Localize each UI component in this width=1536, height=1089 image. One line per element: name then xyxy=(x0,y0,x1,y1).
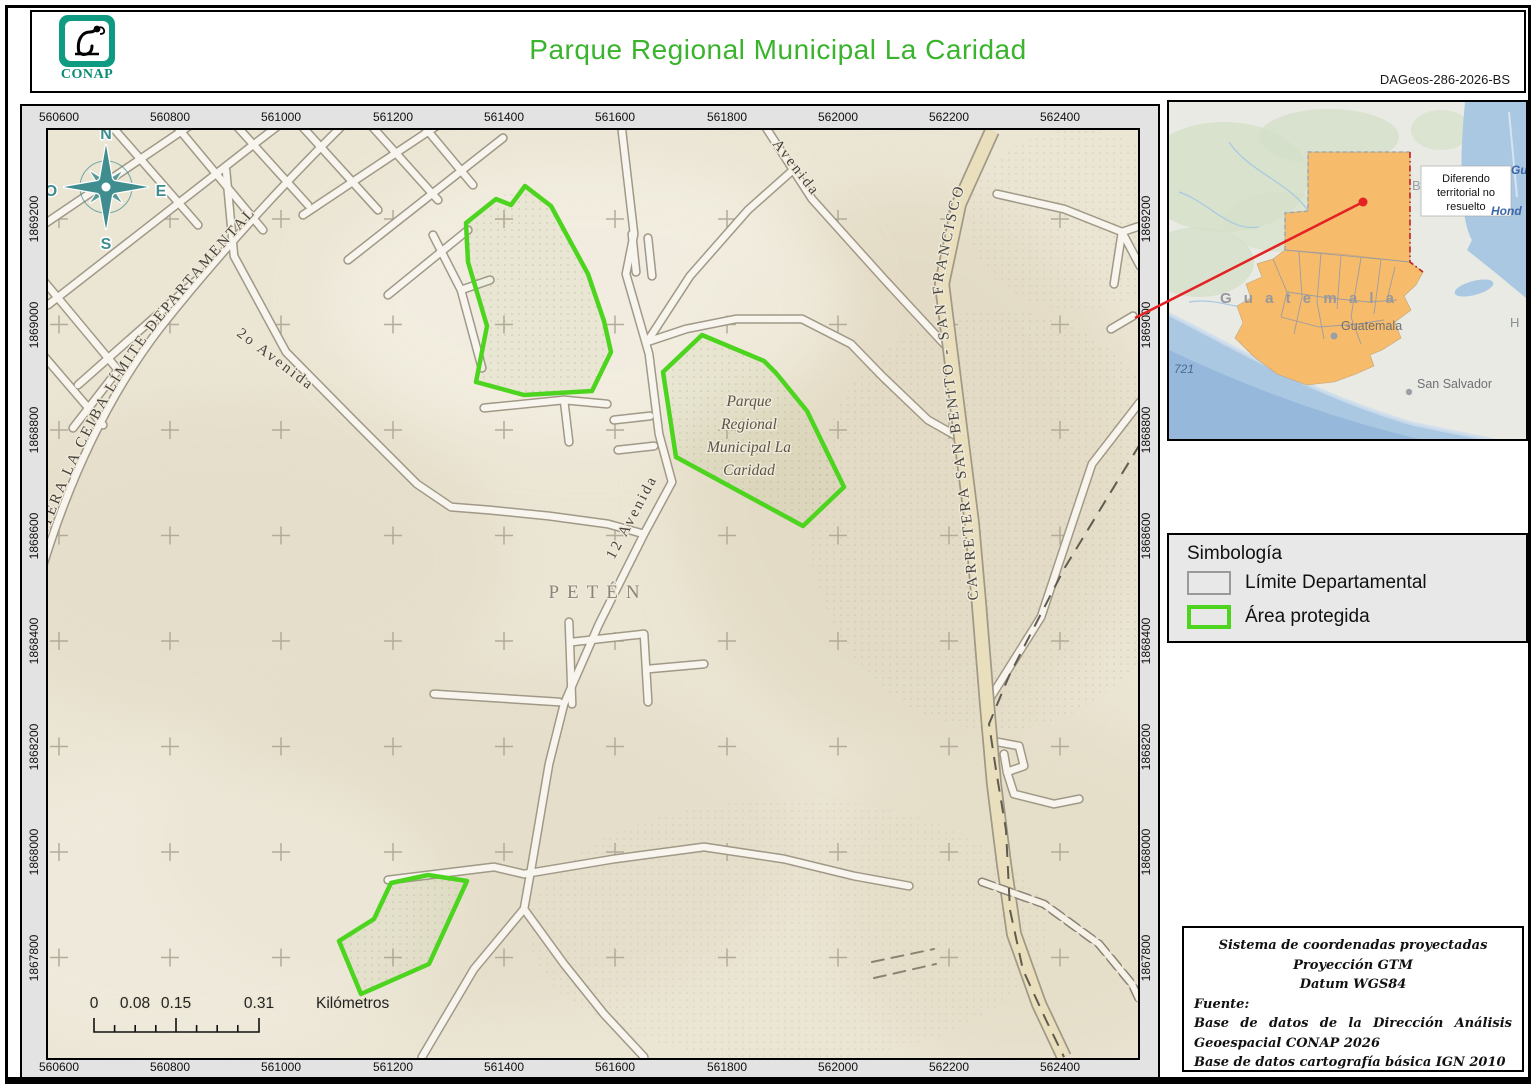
grid-coordinate-label: 1868200 xyxy=(27,723,41,770)
inset-honduras-gray-fragment: H o xyxy=(1510,315,1526,330)
crs-line: Proyección GTM xyxy=(1194,956,1512,976)
svg-text:territorial no: territorial no xyxy=(1437,187,1495,199)
grid-coordinate-label: 561200 xyxy=(373,1060,413,1074)
map-document-page: CONAP Parque Regional Municipal La Carid… xyxy=(0,0,1536,1089)
grid-coordinate-label: 561000 xyxy=(261,1060,301,1074)
inset-bathymetry-label: 721 xyxy=(1174,362,1194,376)
page-title: Parque Regional Municipal La Caridad xyxy=(32,34,1524,66)
svg-text:Diferendo: Diferendo xyxy=(1442,173,1490,185)
grid-coordinate-label: 1867800 xyxy=(1139,934,1153,981)
grid-coordinate-label: 562400 xyxy=(1040,1060,1080,1074)
grid-coordinate-label: 561200 xyxy=(373,110,413,124)
svg-text:Regional: Regional xyxy=(720,416,777,433)
legend-title: Simbología xyxy=(1187,543,1282,565)
legend-item-protected: Área protegida xyxy=(1187,605,1370,629)
compass-n: N xyxy=(100,130,112,143)
svg-text:0: 0 xyxy=(90,995,99,1012)
inset-san-salvador-dot xyxy=(1406,389,1412,395)
grid-coordinate-label: 562200 xyxy=(929,110,969,124)
grid-coordinate-label: 1869200 xyxy=(1139,196,1153,243)
grid-coordinate-label: 1868600 xyxy=(27,512,41,559)
grid-coordinate-label: 1867800 xyxy=(27,934,41,981)
grid-coordinate-label: 561800 xyxy=(707,110,747,124)
svg-text:Kilómetros: Kilómetros xyxy=(316,995,389,1012)
grid-coordinate-label: 560600 xyxy=(39,110,79,124)
crs-line: Sistema de coordenadas proyectadas xyxy=(1194,936,1512,956)
svg-text:resuelto: resuelto xyxy=(1446,201,1485,213)
department-label: PETÉN xyxy=(548,581,647,603)
grid-coordinate-label: 1868400 xyxy=(27,618,41,665)
grid-coordinate-label: 562200 xyxy=(929,1060,969,1074)
inset-guatemala-city-dot xyxy=(1331,333,1338,340)
inset-belize-fragment: B xyxy=(1412,178,1421,193)
protected-area-swatch xyxy=(1187,605,1231,629)
legend-item-departmental: Límite Departamental xyxy=(1187,571,1427,595)
map-canvas: CARRETERA LA CEIBA LÍMITE DEPARTAMENTAL … xyxy=(46,128,1140,1060)
grid-coordinate-label: 1868600 xyxy=(1139,512,1153,559)
inset-locator-map: B Diferendo territorial no resuelto G u … xyxy=(1167,100,1528,441)
credits-box: Sistema de coordenadas proyectadas Proye… xyxy=(1182,926,1524,1072)
grid-coordinate-label: 561000 xyxy=(261,110,301,124)
grid-coordinate-label: 561400 xyxy=(484,1060,524,1074)
grid-coordinate-label: 562000 xyxy=(818,1060,858,1074)
inset-country-label: G u a t e m a l a xyxy=(1220,290,1398,307)
grid-coordinate-label: 561400 xyxy=(484,110,524,124)
header-bar: CONAP Parque Regional Municipal La Carid… xyxy=(30,10,1526,93)
grid-coordinate-label: 560800 xyxy=(150,110,190,124)
svg-text:Caridad: Caridad xyxy=(723,462,775,479)
source-line: Base de datos cartografía básica IGN 201… xyxy=(1194,1053,1512,1073)
svg-text:Parque: Parque xyxy=(725,393,771,410)
svg-text:0.08: 0.08 xyxy=(120,995,150,1012)
inset-san-salvador-label: San Salvador xyxy=(1417,377,1492,391)
source-line: Base de datos de la Dirección Análisis G… xyxy=(1194,1014,1512,1053)
grid-coordinate-label: 1868800 xyxy=(1139,407,1153,454)
grid-coordinate-label: 561600 xyxy=(595,1060,635,1074)
compass-s: S xyxy=(101,236,112,253)
svg-text:0.31: 0.31 xyxy=(244,995,274,1012)
grid-coordinate-label: 561800 xyxy=(707,1060,747,1074)
grid-coordinate-label: 1868000 xyxy=(27,829,41,876)
grid-coordinate-label: 562000 xyxy=(818,110,858,124)
grid-coordinate-label: 561600 xyxy=(595,110,635,124)
departmental-boundary-swatch xyxy=(1187,571,1231,595)
inset-honduras-fragment: Hond xyxy=(1491,204,1522,218)
document-code: DAGeos-286-2026-BS xyxy=(1380,72,1510,87)
grid-coordinate-label: 1868800 xyxy=(27,407,41,454)
compass-o: O xyxy=(48,183,57,200)
svg-text:0.15: 0.15 xyxy=(161,995,191,1012)
grid-coordinate-label: 560800 xyxy=(150,1060,190,1074)
grid-coordinate-label: 1868000 xyxy=(1139,829,1153,876)
grid-coordinate-label: 1868400 xyxy=(1139,618,1153,665)
map-sheet: CARRETERA LA CEIBA LÍMITE DEPARTAMENTAL … xyxy=(20,104,1160,1080)
conap-logo-text: CONAP xyxy=(56,67,118,83)
legend-box: Simbología Límite Departamental Área pro… xyxy=(1167,533,1528,643)
grid-coordinate-label: 1869000 xyxy=(1139,301,1153,348)
grid-coordinate-label: 560600 xyxy=(39,1060,79,1074)
grid-coordinate-label: 562400 xyxy=(1040,110,1080,124)
compass-e: E xyxy=(156,183,167,200)
grid-coordinate-label: 1869000 xyxy=(27,301,41,348)
svg-text:Municipal La: Municipal La xyxy=(706,439,791,456)
inset-city-label: Guatemala xyxy=(1341,319,1402,333)
crs-line: Datum WGS84 xyxy=(1194,975,1512,995)
grid-coordinate-label: 1868200 xyxy=(1139,723,1153,770)
fuente-label: Fuente: xyxy=(1194,995,1512,1015)
inset-gulf-fragment: Gu xyxy=(1511,163,1526,177)
grid-coordinate-label: 1869200 xyxy=(27,196,41,243)
